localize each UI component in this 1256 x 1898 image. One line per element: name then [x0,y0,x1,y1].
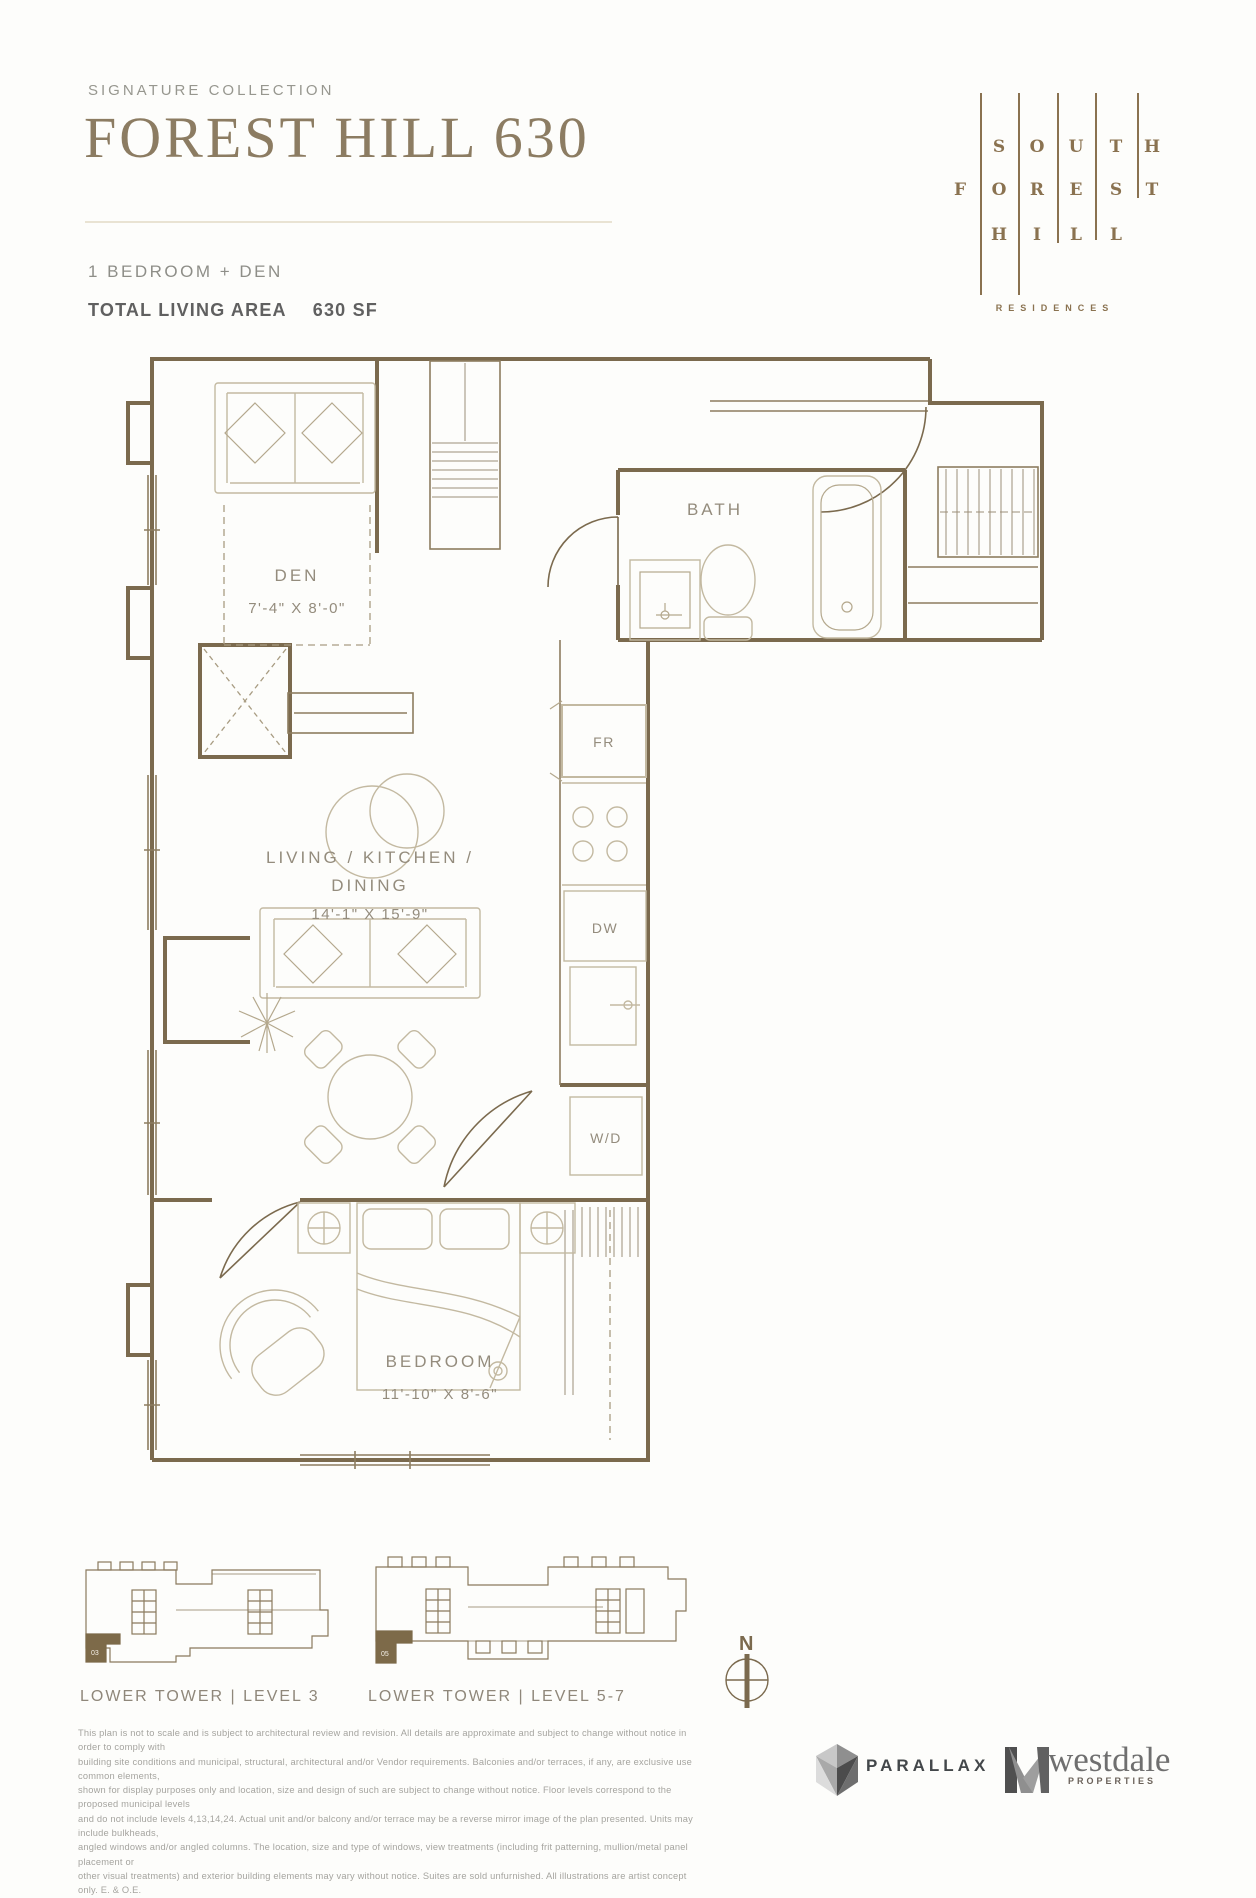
dishwasher-label: DW [592,920,618,936]
parallax-cube-icon [812,1742,862,1798]
logo-vertical-bar [1057,93,1059,243]
floorplan-drawing: DEN 7'-4" X 8'-0" BATH LIVING / KITCHEN … [70,345,1050,1475]
logo-vertical-bar [1018,93,1020,295]
logo-letter: O [1022,137,1052,157]
keyplan-level-5-7: 05 [368,1545,703,1685]
door-swings [220,407,926,1278]
logo-vertical-bar [1137,93,1139,198]
bath-label: BATH [687,500,743,519]
logo-vertical-bar [1095,93,1097,240]
unit-type-label: 1 BEDROOM + DEN [88,262,283,282]
page-title: FOREST HILL 630 [84,104,590,171]
logo-letter: S [984,137,1014,157]
compass-north-label: N [739,1633,753,1655]
westdale-properties-label: PROPERTIES [1068,1776,1156,1786]
living-dims: 14'-1" X 15'-9" [311,906,428,923]
logo-letter: E [1061,180,1091,200]
disclaimer-line: building site conditions and municipal, … [78,1755,708,1784]
logo-letter: I [1022,225,1052,245]
logo-letter: F [945,180,975,200]
westdale-w-icon [1003,1745,1051,1795]
disclaimer-line: other visual treatments) and exterior bu… [78,1869,708,1898]
washer-dryer-label: W/D [590,1130,622,1146]
disclaimer-line: angled windows and/or angled columns. Th… [78,1840,708,1869]
area-label: TOTAL LIVING AREA [88,300,287,320]
parallax-wordmark: PARALLAX [866,1756,989,1776]
logo-letter: L [1061,225,1091,245]
logo-letter: H [984,225,1014,245]
title-rule [85,221,612,223]
total-living-area: TOTAL LIVING AREA630 SF [88,300,378,321]
bedroom-dims: 11'-10" X 8'-6" [382,1386,498,1403]
logo-letter: H [1137,137,1167,157]
den-dims: 7'-4" X 8'-0" [248,600,346,617]
living-label-line2: DINING [331,876,409,895]
living-label-line1: LIVING / KITCHEN / [266,848,474,867]
logo-letter: T [1101,137,1131,157]
keyplan1-unit-number: 03 [91,1650,99,1657]
den-label: DEN [275,566,320,585]
keyplan2-label: LOWER TOWER | LEVEL 5-7 [368,1688,626,1706]
keyplan1-label: LOWER TOWER | LEVEL 3 [80,1688,320,1706]
collection-label: SIGNATURE COLLECTION [88,82,334,99]
room-labels: DEN 7'-4" X 8'-0" BATH LIVING / KITCHEN … [248,500,743,1403]
disclaimer-line: shown for display purposes only and loca… [78,1783,708,1812]
logo-vertical-bar [980,93,982,295]
logo-letter: T [1137,180,1167,200]
floorplan-page: SIGNATURE COLLECTION FOREST HILL 630 1 B… [0,0,1256,1838]
bedroom-label: BEDROOM [386,1352,495,1371]
logo-letter: S [1101,180,1131,200]
compass: N [712,1628,782,1713]
area-value: 630 SF [313,300,378,320]
legal-disclaimer: This plan is not to scale and is subject… [78,1726,708,1898]
logo-letter: R [1022,180,1052,200]
keyplan2-unit-number: 05 [381,1651,389,1658]
furniture [198,383,881,1414]
dashed-lines [204,505,610,1440]
disclaimer-line: This plan is not to scale and is subject… [78,1726,708,1755]
disclaimer-line: and do not include levels 4,13,14,24. Ac… [78,1812,708,1841]
south-forest-hill-logo: SOUTHFORESTHILL RESIDENCES [940,85,1195,330]
logo-residences-label: RESIDENCES [940,303,1170,313]
keyplan-level-3: 03 [80,1552,335,1682]
fridge-label: FR [593,734,615,750]
logo-letter: O [984,180,1014,200]
logo-letter: U [1061,137,1091,157]
westdale-wordmark: westdale [1048,1740,1170,1780]
logo-letter: L [1101,225,1131,245]
